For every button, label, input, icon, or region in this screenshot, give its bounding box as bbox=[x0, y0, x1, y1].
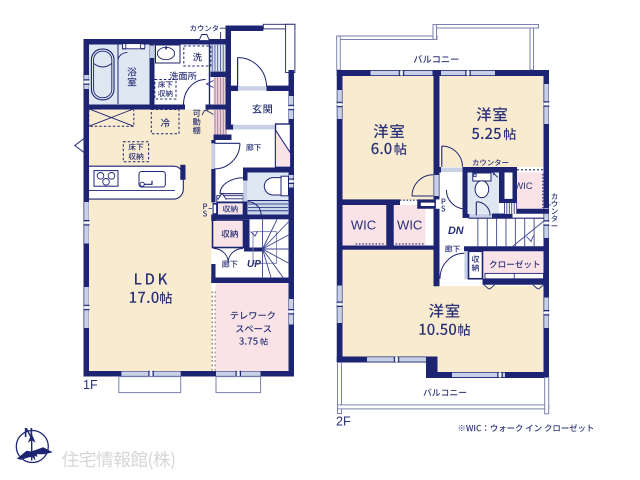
svg-text:WIC: WIC bbox=[351, 218, 376, 233]
svg-text:DN: DN bbox=[448, 225, 464, 237]
svg-text:WIC: WIC bbox=[514, 180, 532, 191]
svg-text:WIC: WIC bbox=[397, 218, 422, 233]
svg-text:1F: 1F bbox=[83, 378, 98, 392]
svg-text:N: N bbox=[24, 426, 33, 440]
svg-text:UP: UP bbox=[247, 259, 261, 270]
svg-text:2F: 2F bbox=[336, 415, 351, 429]
